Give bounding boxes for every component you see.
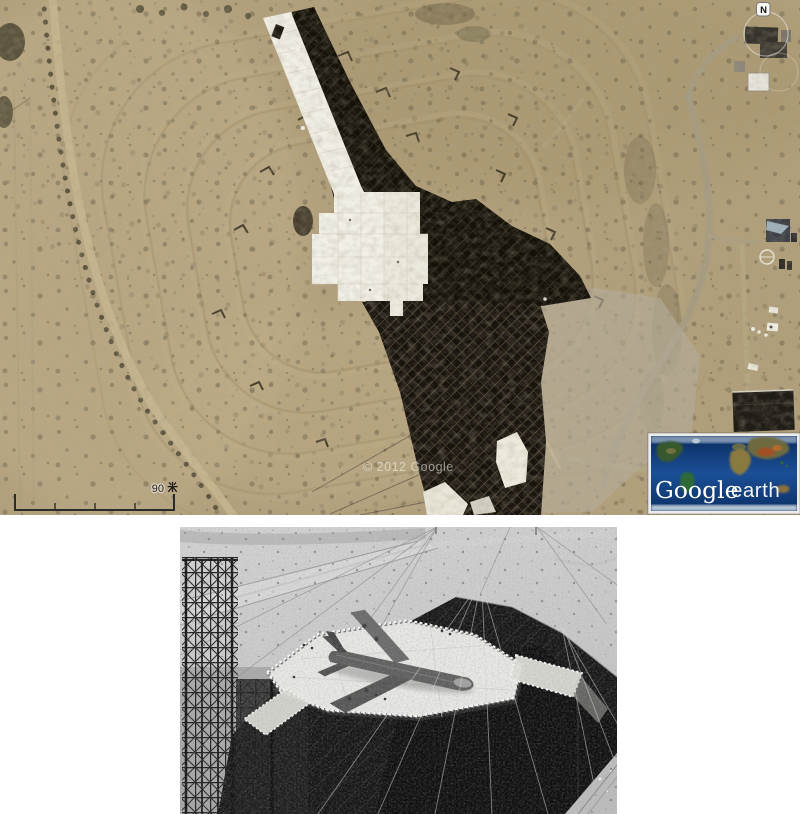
screenshot-page: 90 © 2012 Google N [0, 0, 800, 814]
film-grain [180, 527, 617, 814]
logo-word-earth: earth [731, 479, 780, 502]
historical-bw-photo [180, 527, 617, 814]
copyright-watermark: © 2012 Google [363, 460, 454, 474]
scale-value: 90 [152, 483, 164, 495]
logo-word-google: Google [655, 476, 739, 504]
compass-north-control[interactable]: N [757, 3, 771, 17]
google-earth-satellite-view: 90 © 2012 Google N [0, 0, 800, 515]
google-earth-logo: Google earth [648, 433, 800, 514]
compass-n-label: N [760, 5, 767, 16]
